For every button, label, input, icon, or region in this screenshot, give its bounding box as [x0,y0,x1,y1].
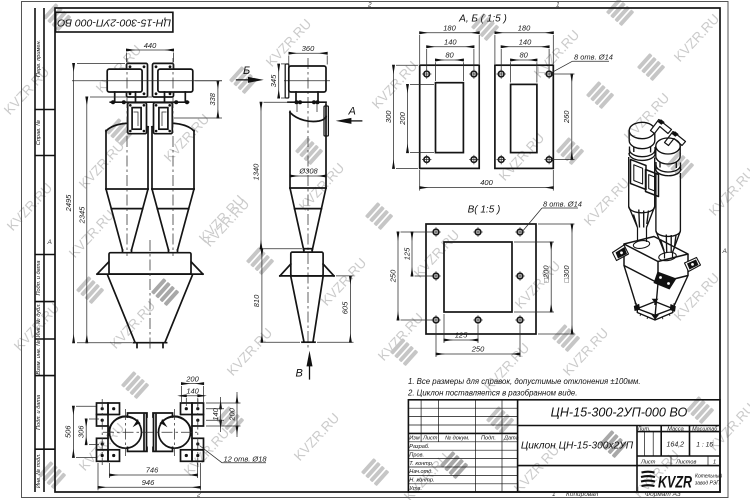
svg-text:1. Все размеры для справок, до: 1. Все размеры для справок, допустимые о… [408,377,641,386]
svg-text:Взам. инв. №: Взам. инв. № [36,340,42,375]
svg-text:ЦН-15-300-2УП-000 ВО: ЦН-15-300-2УП-000 ВО [551,406,688,420]
svg-text:Лит.: Лит. [636,426,650,432]
svg-text:164,2: 164,2 [667,442,685,449]
svg-text:12 отв. Ø18: 12 отв. Ø18 [224,455,268,464]
svg-text:80: 80 [445,51,454,60]
svg-text:Масса: Масса [667,426,684,432]
svg-text:8 отв. Ø14: 8 отв. Ø14 [543,200,582,209]
svg-text:140: 140 [211,407,220,420]
svg-text:Нач.отд.: Нач.отд. [409,469,433,475]
svg-text:810: 810 [252,294,261,307]
svg-text:1340: 1340 [251,163,260,181]
svg-text:2: 2 [196,491,201,498]
svg-text:Масштаб: Масштаб [692,426,718,432]
svg-text:Перв. примен.: Перв. примен. [36,40,42,77]
svg-text:Пров.: Пров. [409,452,424,458]
svg-text:Изм: Изм [409,436,420,442]
svg-text:Н. контр.: Н. контр. [409,478,434,484]
svg-text:180: 180 [443,23,456,32]
svg-text:Инв. № дубл.: Инв. № дубл. [36,303,42,337]
svg-text:□300: □300 [562,265,571,283]
svg-text:Ø308: Ø308 [298,167,318,176]
svg-text:400: 400 [480,178,493,187]
svg-text:2495: 2495 [64,194,73,213]
svg-text:250: 250 [388,269,397,283]
svg-text:№ докум.: № докум. [445,436,470,442]
svg-text:260: 260 [562,110,571,124]
svg-text:946: 946 [142,478,155,487]
svg-text:140: 140 [444,37,457,46]
svg-text:140: 140 [519,37,532,46]
svg-text:А: А [348,106,356,118]
svg-text:KVZR: KVZR [658,473,693,492]
svg-text:Циклон ЦН-15-300х2УП: Циклон ЦН-15-300х2УП [521,441,634,452]
svg-text:А, Б ( 1:5 ): А, Б ( 1:5 ) [458,14,507,25]
svg-text:завод РЭП: завод РЭП [694,481,720,487]
svg-text:Листов: Листов [675,460,696,466]
svg-text:125: 125 [402,247,411,260]
svg-text:125: 125 [455,331,468,340]
svg-text:Справ. №: Справ. № [36,120,42,145]
svg-text:306: 306 [76,425,85,438]
svg-text:200: 200 [227,407,236,421]
svg-text:Подп. и дата: Подп. и дата [36,260,42,295]
svg-text:Котельный: Котельный [695,473,722,480]
svg-text:2345: 2345 [77,206,86,225]
svg-text:338: 338 [208,92,217,105]
svg-text:200: 200 [398,111,407,125]
svg-text:Б: Б [243,65,250,77]
svg-text:□200: □200 [541,265,550,283]
svg-text:Дата: Дата [503,436,519,442]
svg-text:А: А [722,248,727,255]
svg-text:250: 250 [471,345,485,354]
svg-text:В: В [296,368,303,380]
svg-text:1: 1 [556,1,560,8]
svg-text:2. Циклон поставляется в разоб: 2. Циклон поставляется в разобранном вид… [407,389,577,398]
svg-text:Утв.: Утв. [408,486,422,492]
svg-text:506: 506 [64,425,73,438]
svg-text:8 отв. Ø14: 8 отв. Ø14 [574,53,613,62]
svg-text:Инв. № подл.: Инв. № подл. [36,453,42,488]
svg-text:Подп. и дата: Подп. и дата [36,395,42,430]
svg-text:440: 440 [144,41,157,50]
svg-text:1 : 15: 1 : 15 [696,442,713,449]
svg-text:Лист: Лист [422,436,438,442]
svg-text:140: 140 [186,386,199,395]
svg-text:200: 200 [185,374,199,383]
svg-text:345: 345 [269,74,278,87]
svg-text:Лист: Лист [640,460,656,466]
svg-text:В( 1:5 ): В( 1:5 ) [468,205,501,216]
svg-text:300: 300 [384,110,393,123]
svg-text:Разраб.: Разраб. [409,444,429,450]
svg-text:605: 605 [341,301,350,314]
svg-text:746: 746 [146,466,159,475]
svg-text:1: 1 [713,460,716,466]
svg-text:80: 80 [520,51,529,60]
svg-text:Т. контр.: Т. контр. [409,461,433,467]
svg-text:ЦН-15-300-2УП-000 ВО: ЦН-15-300-2УП-000 ВО [57,16,171,28]
svg-text:180: 180 [518,23,531,32]
svg-text:А: А [47,239,52,246]
svg-text:360: 360 [302,44,315,53]
svg-text:Подп.: Подп. [481,436,496,442]
svg-text:2: 2 [367,1,372,8]
